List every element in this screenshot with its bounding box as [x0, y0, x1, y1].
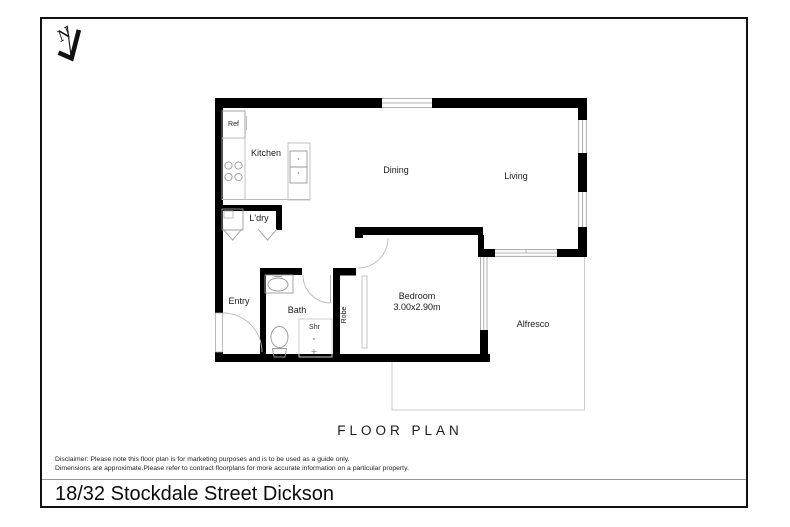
- door-arc: [303, 275, 331, 303]
- north-arrow-icon: N: [48, 19, 90, 63]
- address-title: 18/32 Stockdale Street Dickson: [55, 483, 334, 506]
- room-label-living: Living: [504, 171, 528, 181]
- wall: [355, 227, 363, 238]
- alfresco-boundary: [392, 257, 585, 410]
- room-label-bedroom: Bedroom: [399, 291, 436, 301]
- room-label-bath: Bath: [288, 305, 307, 315]
- wall: [215, 205, 282, 211]
- window-top: [382, 98, 432, 108]
- window-right-upper: [578, 120, 587, 153]
- floor-plan-heading: FLOOR PLAN: [290, 423, 510, 438]
- wall: [215, 98, 382, 108]
- fridge: Ref: [222, 111, 247, 138]
- bathroom-vanity: [265, 275, 293, 293]
- disclaimer-line-1: Disclaimer: Please note this floor plan …: [55, 456, 409, 465]
- wall: [557, 249, 587, 257]
- door-arc: [223, 313, 262, 352]
- laundry-tub: [222, 209, 243, 230]
- wall: [215, 354, 490, 362]
- window-right-lower: [578, 192, 587, 227]
- laundry-bifold-doors: [223, 229, 277, 240]
- room-label-entry: Entry: [228, 296, 250, 306]
- wall: [578, 153, 587, 192]
- bedroom-door: [358, 238, 388, 268]
- bath-door: [303, 275, 331, 303]
- room-label-alfresco: Alfresco: [517, 319, 550, 329]
- toilet: [271, 327, 288, 358]
- cooktop: [225, 162, 242, 181]
- room-label-robe: Robe: [341, 307, 348, 324]
- title-separator-line: [42, 479, 746, 480]
- wall: [333, 268, 340, 362]
- disclaimer-line-2: Dimensions are approximate.Please refer …: [55, 465, 409, 474]
- floor-plan-drawing: N: [0, 0, 790, 527]
- wall: [480, 330, 488, 362]
- wall: [478, 235, 484, 251]
- shower: Shr: [299, 319, 332, 357]
- kitchen-sink: [290, 151, 307, 183]
- wall: [578, 98, 587, 120]
- room-label-kitchen: Kitchen: [251, 148, 281, 158]
- wall: [276, 205, 282, 230]
- doors: [216, 229, 388, 352]
- window-living-bottom: [495, 249, 557, 257]
- room-labels: Kitchen Dining Living L'dry Entry Bath R…: [228, 148, 549, 329]
- north-arrow-label: N: [53, 23, 75, 46]
- window-bedroom-right: [480, 257, 488, 330]
- room-label-shower: Shr: [309, 324, 321, 331]
- robe-sliding-door: [362, 276, 367, 348]
- room-label-laundry: L'dry: [249, 213, 269, 223]
- wall: [333, 268, 356, 276]
- entry-door: [216, 313, 262, 352]
- bedroom-dimensions: 3.00x2.90m: [393, 302, 440, 312]
- door-arc: [358, 238, 388, 268]
- fridge-label: Ref: [228, 121, 239, 128]
- kitchen-counter: [222, 138, 245, 200]
- wall: [260, 268, 302, 275]
- wall: [432, 98, 587, 108]
- floor-plan-page: N: [0, 0, 790, 527]
- room-label-dining: Dining: [383, 165, 409, 175]
- disclaimer: Disclaimer: Please note this floor plan …: [55, 456, 409, 474]
- wall: [355, 227, 483, 235]
